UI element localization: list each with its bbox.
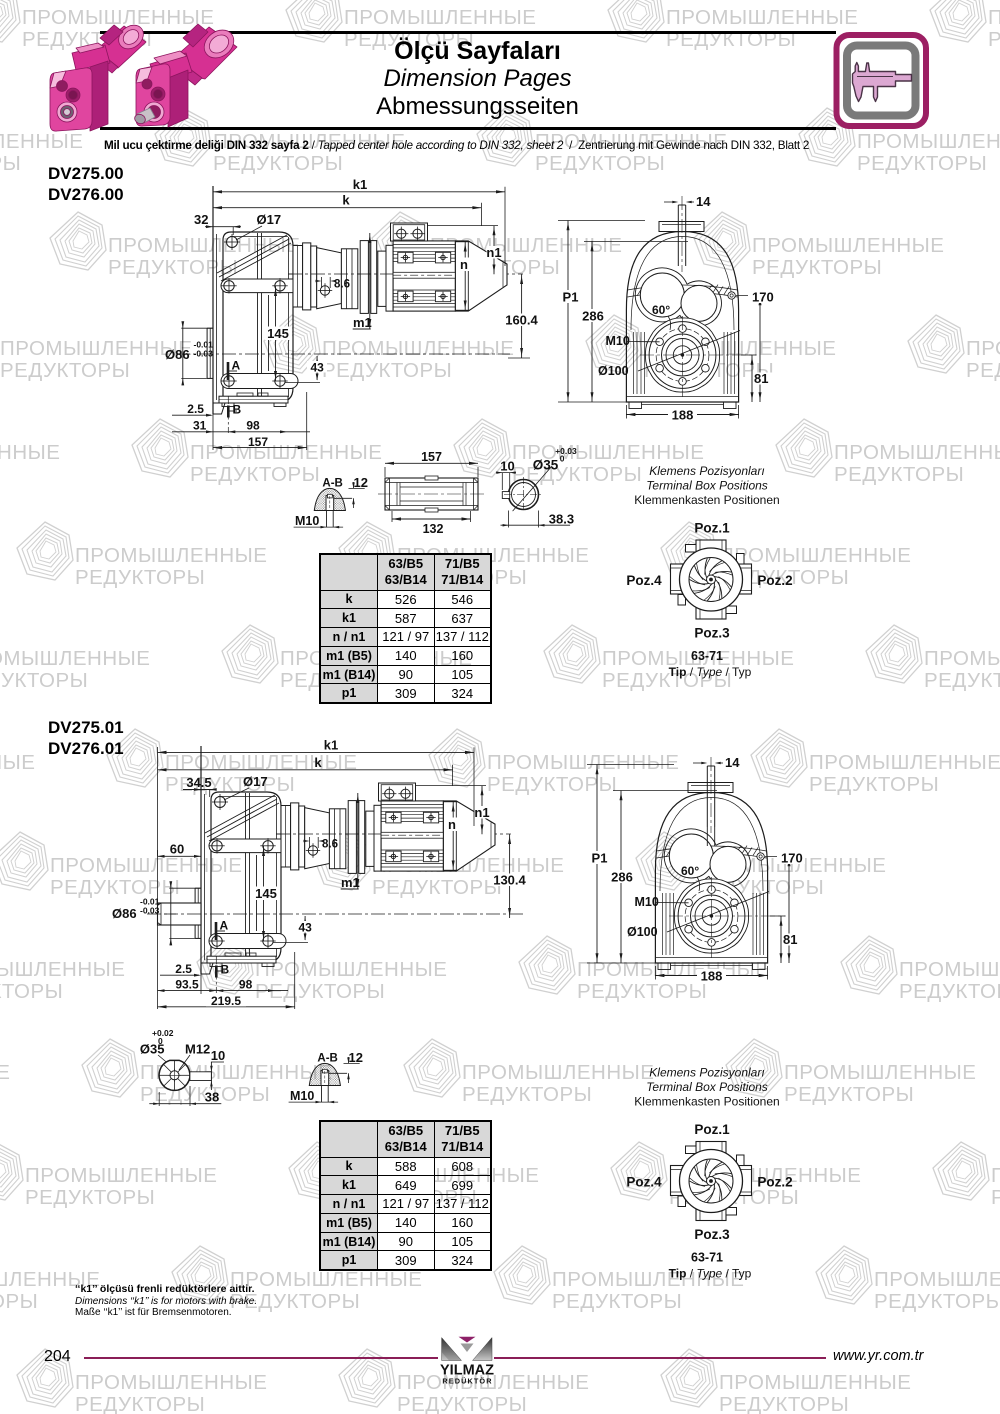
svg-text:Terminal Box Positions: Terminal Box Positions [646, 1080, 768, 1094]
svg-text:Klemmenkasten Positionen: Klemmenkasten Positionen [634, 1095, 779, 1109]
svg-text:M10: M10 [295, 514, 319, 528]
svg-text:98: 98 [239, 977, 253, 991]
svg-text:k1: k1 [353, 177, 367, 192]
svg-text:M10: M10 [606, 334, 630, 348]
svg-text:+0.02: +0.02 [152, 1028, 174, 1038]
svg-text:P1: P1 [592, 851, 608, 866]
svg-text:+0.03: +0.03 [555, 446, 577, 456]
svg-text:188: 188 [672, 408, 694, 423]
svg-text:60°: 60° [681, 864, 699, 878]
svg-text:2.5: 2.5 [187, 402, 204, 416]
svg-text:A-B: A-B [317, 1053, 337, 1065]
svg-text:n1: n1 [474, 805, 489, 820]
svg-text:Terminal Box Positions: Terminal Box Positions [646, 479, 768, 493]
svg-text:60: 60 [170, 842, 184, 857]
svg-text:14: 14 [696, 194, 711, 209]
svg-text:Poz.4: Poz.4 [626, 573, 662, 588]
svg-text:0: 0 [560, 454, 565, 464]
svg-text:286: 286 [611, 870, 633, 885]
svg-text:n1: n1 [486, 245, 501, 260]
svg-text:Tip / Type / Typ: Tip / Type / Typ [669, 665, 752, 679]
svg-text:43: 43 [299, 921, 313, 935]
svg-text:Ø86: Ø86 [112, 906, 137, 921]
svg-text:63-71: 63-71 [691, 649, 723, 663]
svg-text:M12: M12 [185, 1042, 210, 1057]
svg-text:Poz.4: Poz.4 [626, 1175, 662, 1190]
svg-text:38: 38 [205, 1090, 219, 1105]
svg-text:34.5: 34.5 [186, 775, 211, 790]
svg-text:Klemmenkasten Positionen: Klemmenkasten Positionen [634, 493, 779, 507]
svg-text:B: B [233, 403, 242, 417]
svg-text:REDÜKTÖR: REDÜKTÖR [442, 1377, 492, 1386]
svg-text:Ø100: Ø100 [627, 925, 658, 939]
svg-text:98: 98 [246, 418, 260, 432]
svg-text:Ø100: Ø100 [598, 364, 629, 378]
svg-text:Poz.2: Poz.2 [757, 573, 792, 588]
svg-text:Ø17: Ø17 [257, 212, 282, 227]
svg-text:81: 81 [783, 932, 797, 947]
svg-text:-0.03: -0.03 [140, 906, 160, 916]
svg-text:Poz.3: Poz.3 [694, 626, 730, 641]
svg-text:43: 43 [311, 361, 325, 375]
svg-text:14: 14 [725, 755, 740, 770]
svg-text:132: 132 [423, 522, 444, 536]
svg-text:157: 157 [248, 435, 268, 449]
svg-text:157: 157 [421, 450, 442, 464]
svg-text:2.5: 2.5 [175, 962, 192, 976]
svg-text:93.5: 93.5 [175, 977, 199, 991]
svg-text:10: 10 [500, 458, 514, 473]
svg-text:145: 145 [267, 326, 289, 341]
svg-text:-0.03: -0.03 [194, 349, 214, 359]
svg-text:286: 286 [582, 309, 604, 324]
svg-text:k: k [314, 755, 322, 770]
svg-text:P1: P1 [563, 290, 579, 305]
svg-text:m1: m1 [341, 875, 360, 890]
svg-text:A: A [220, 919, 229, 933]
svg-text:Poz.2: Poz.2 [757, 1175, 792, 1190]
svg-text:12: 12 [354, 475, 368, 490]
svg-text:Tip / Type / Typ: Tip / Type / Typ [669, 1267, 752, 1281]
svg-text:n: n [448, 817, 456, 832]
svg-text:81: 81 [754, 371, 768, 386]
svg-text:8.6: 8.6 [334, 279, 350, 291]
svg-text:145: 145 [255, 886, 277, 901]
svg-text:Klemens Pozisyonları: Klemens Pozisyonları [649, 1066, 764, 1080]
svg-text:Poz.1: Poz.1 [694, 521, 730, 536]
svg-text:M10: M10 [290, 1089, 314, 1103]
svg-text:M10: M10 [635, 895, 659, 909]
svg-text:k: k [342, 193, 350, 208]
svg-text:Ø17: Ø17 [243, 774, 268, 789]
svg-text:Poz.1: Poz.1 [694, 1122, 730, 1137]
svg-text:160.4: 160.4 [505, 313, 538, 328]
svg-text:60°: 60° [652, 303, 670, 317]
svg-text:219.5: 219.5 [211, 994, 241, 1008]
svg-text:31: 31 [193, 418, 207, 432]
svg-text:A-B: A-B [322, 478, 342, 490]
svg-text:m1: m1 [353, 315, 372, 330]
svg-text:Ø35: Ø35 [140, 1042, 165, 1057]
svg-text:n: n [460, 257, 468, 272]
svg-text:170: 170 [752, 290, 774, 305]
svg-text:A: A [232, 359, 241, 373]
svg-text:38.3: 38.3 [549, 511, 574, 526]
svg-text:32: 32 [194, 212, 208, 227]
svg-text:Ø35: Ø35 [533, 458, 559, 473]
svg-text:188: 188 [701, 969, 723, 984]
svg-text:k1: k1 [324, 737, 338, 752]
svg-text:10: 10 [211, 1048, 225, 1063]
svg-text:Klemens Pozisyonları: Klemens Pozisyonları [649, 464, 764, 478]
svg-text:Ø86: Ø86 [165, 347, 190, 362]
svg-text:8.6: 8.6 [322, 839, 338, 851]
svg-text:12: 12 [349, 1050, 363, 1065]
svg-text:170: 170 [781, 851, 803, 866]
svg-text:B: B [221, 963, 230, 977]
svg-text:130.4: 130.4 [493, 873, 526, 888]
svg-text:63-71: 63-71 [691, 1251, 723, 1265]
svg-text:Poz.3: Poz.3 [694, 1227, 730, 1242]
